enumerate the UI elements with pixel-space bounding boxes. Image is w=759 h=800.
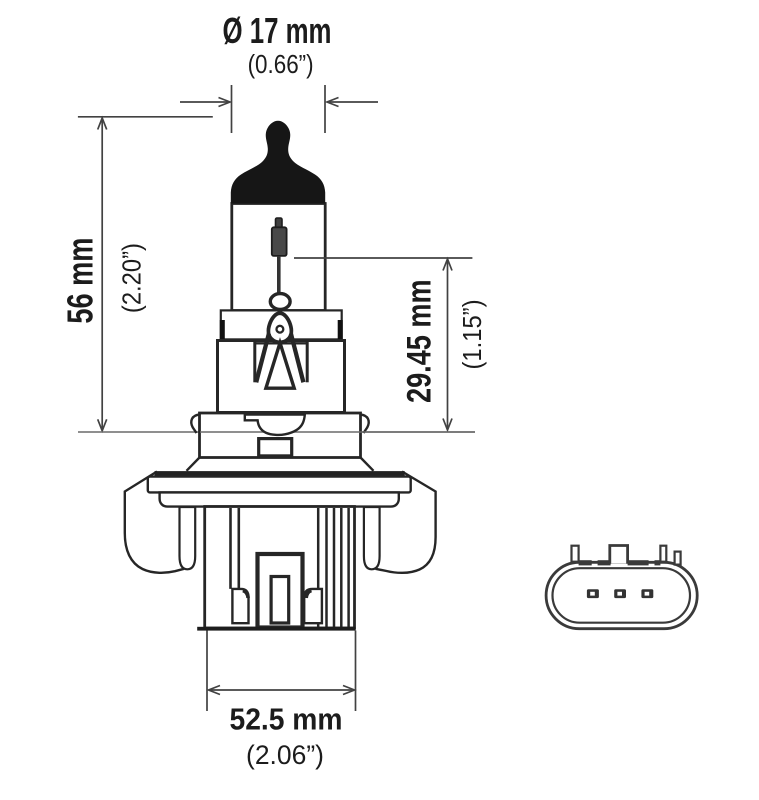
svg-text:29.45 mm: 29.45 mm	[400, 279, 438, 403]
svg-text:(0.66”): (0.66”)	[248, 49, 314, 79]
svg-text:(2.20”): (2.20”)	[117, 243, 147, 313]
svg-text:Ø 17 mm: Ø 17 mm	[223, 10, 332, 51]
svg-text:52.5 mm: 52.5 mm	[230, 701, 343, 736]
svg-text:(2.06”): (2.06”)	[246, 740, 324, 770]
svg-text:(1.15”): (1.15”)	[457, 300, 487, 370]
svg-text:56 mm: 56 mm	[59, 238, 100, 324]
